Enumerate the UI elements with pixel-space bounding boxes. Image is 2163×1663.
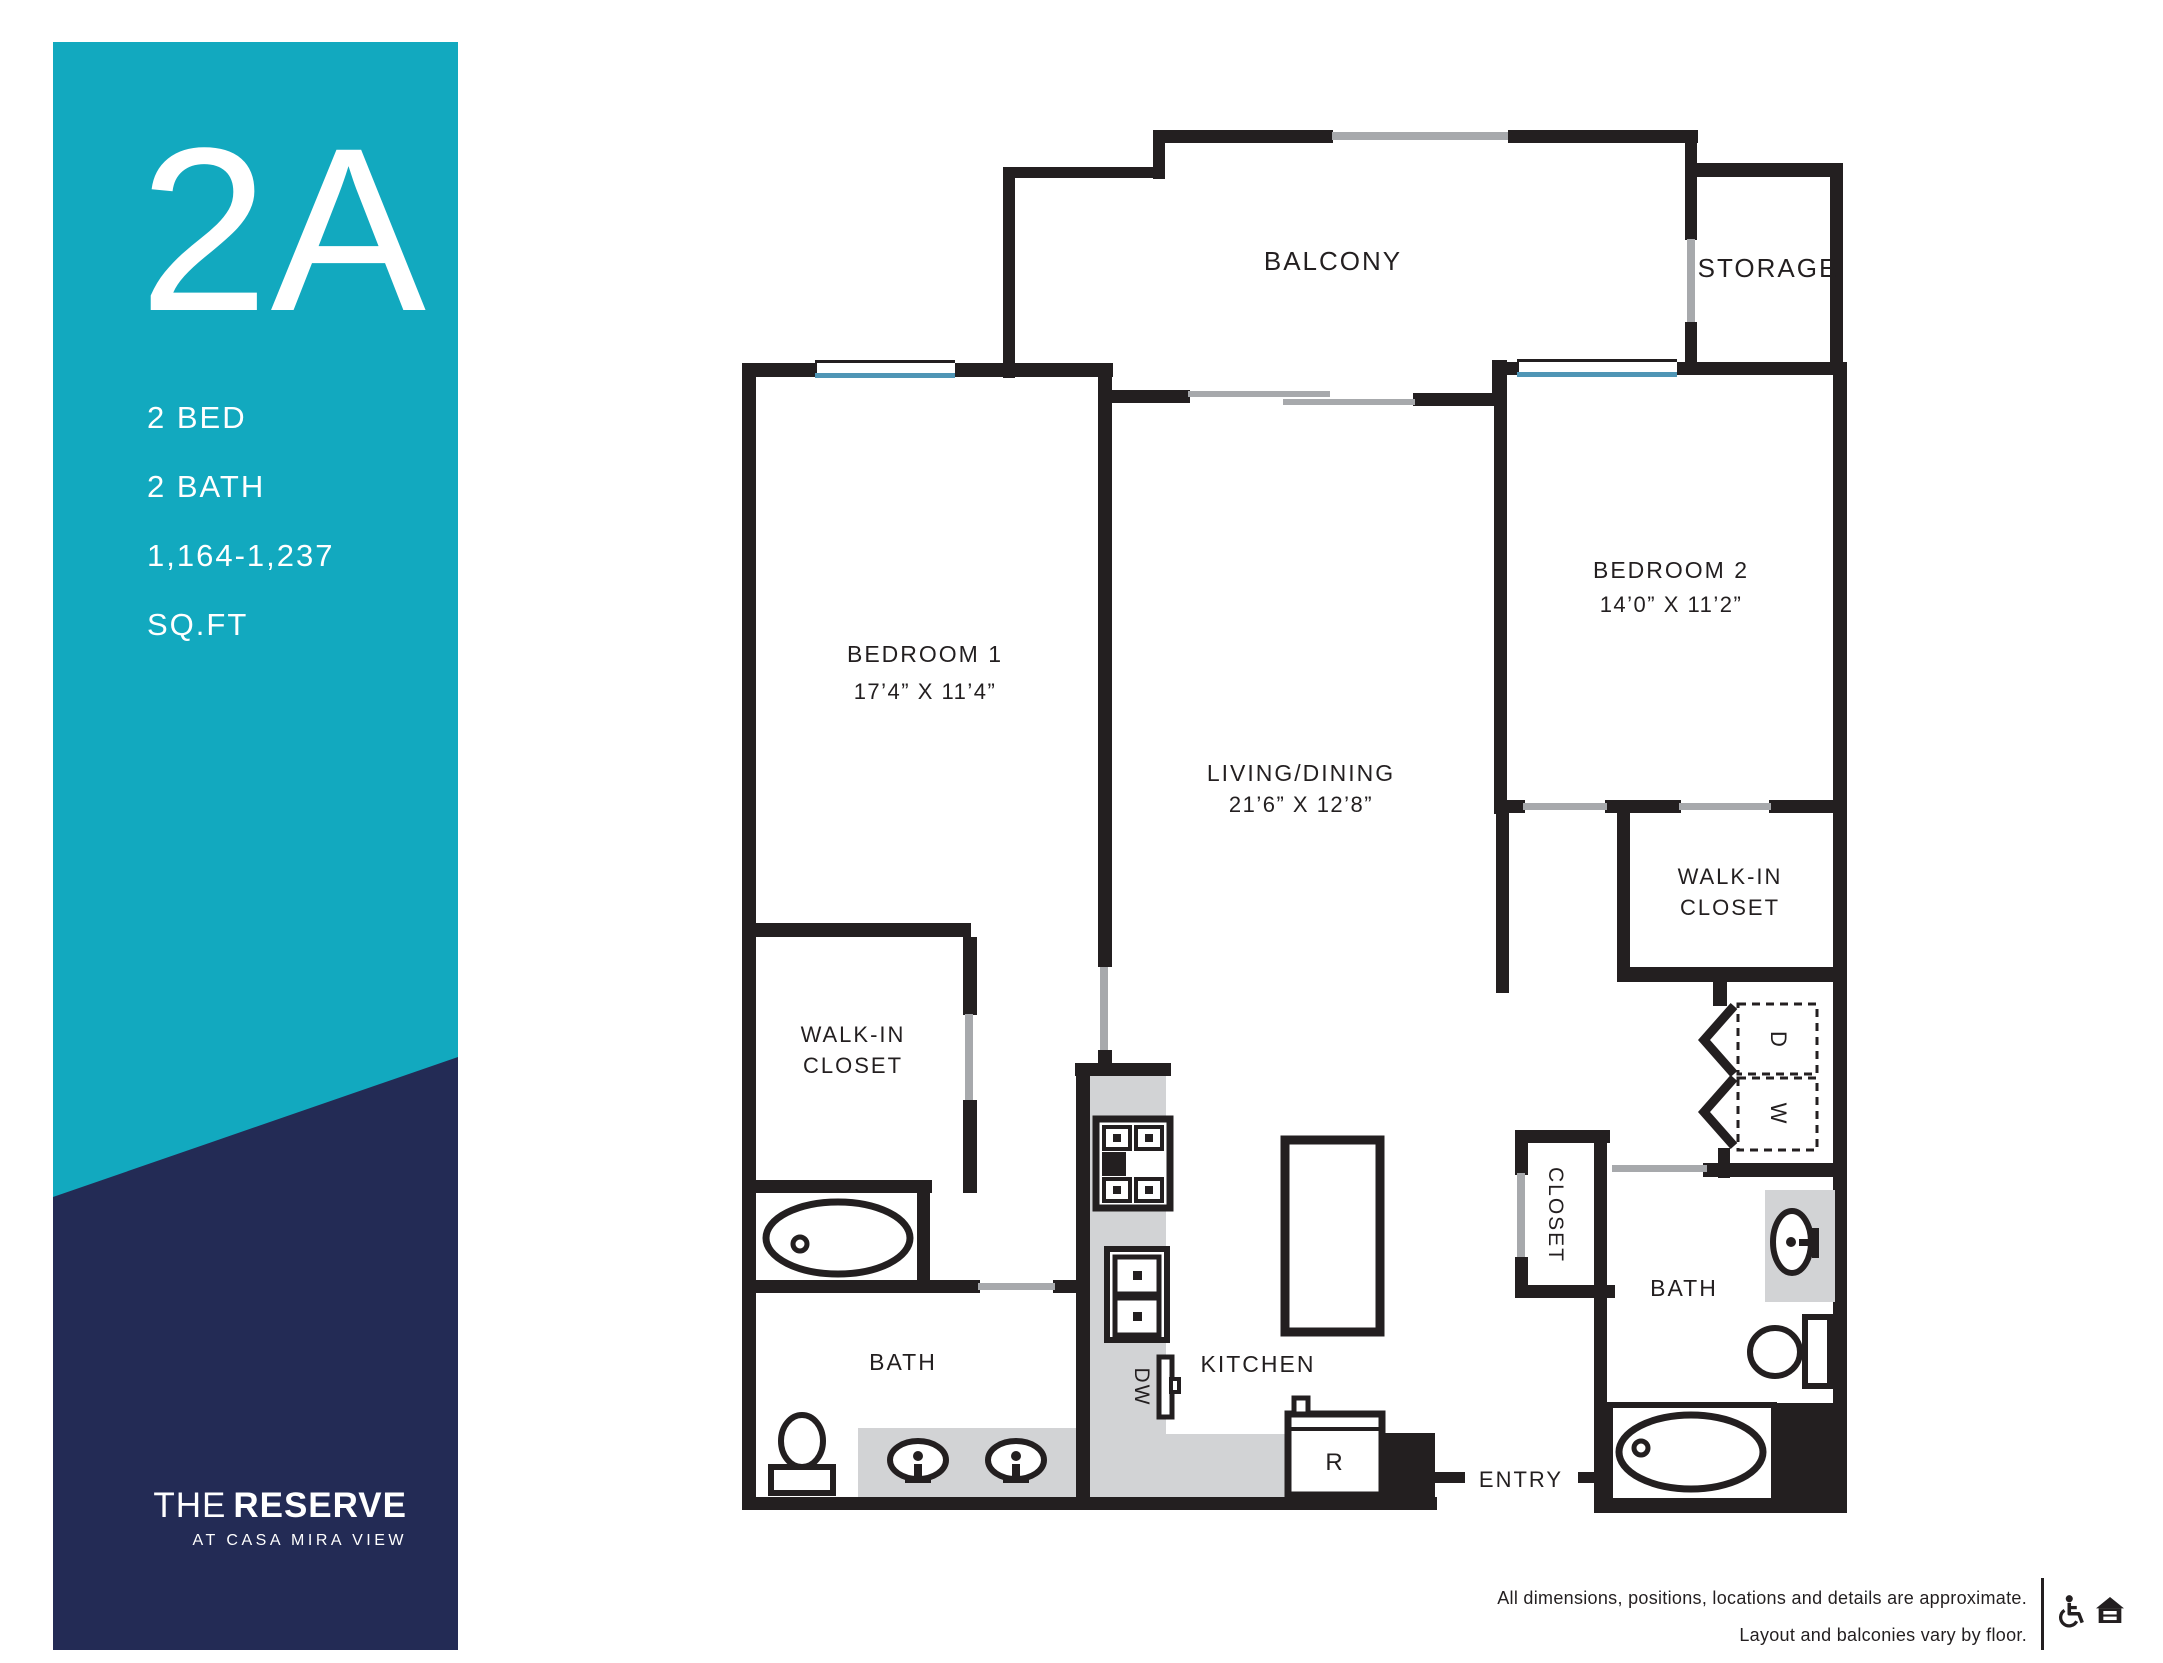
bathtub-icon bbox=[766, 1202, 910, 1274]
room-dims-bedroom2: 14’0” X 11’2” bbox=[1600, 592, 1743, 617]
bathtub-icon bbox=[1610, 1405, 1774, 1501]
bedroom1-door bbox=[1100, 967, 1108, 1050]
floor-plan: BALCONY STORAGE BEDROOM 1 17’4” X 11’4” … bbox=[0, 0, 2163, 1663]
label-refrigerator: R bbox=[1325, 1449, 1344, 1476]
room-label-entry: ENTRY bbox=[1479, 1467, 1563, 1492]
room-label-kitchen: KITCHEN bbox=[1201, 1351, 1316, 1377]
room-dims-bedroom1: 17’4” X 11’4” bbox=[854, 679, 997, 704]
closet-door bbox=[1517, 1173, 1525, 1257]
room-label-storage: STORAGE bbox=[1698, 253, 1839, 283]
footer-icons bbox=[2057, 1594, 2126, 1628]
bath2-door bbox=[1612, 1165, 1707, 1172]
label-dryer: D bbox=[1766, 1031, 1791, 1049]
bifold-doors-icon bbox=[1704, 1006, 1734, 1146]
room-label-wic2-line2: CLOSET bbox=[1680, 895, 1780, 920]
toilet-icon bbox=[771, 1415, 833, 1493]
bath1-door bbox=[978, 1283, 1055, 1290]
bedroom1-window bbox=[815, 373, 955, 378]
sink-icon bbox=[988, 1441, 1044, 1483]
bedroom2-window bbox=[1517, 372, 1677, 377]
sliding-door-panel bbox=[1283, 399, 1415, 405]
room-label-bath2: BATH bbox=[1650, 1275, 1718, 1301]
room-label-closet: CLOSET bbox=[1544, 1167, 1567, 1263]
room-label-bath1: BATH bbox=[869, 1349, 937, 1375]
dishwasher-icon bbox=[1159, 1357, 1179, 1417]
room-dims-living: 21’6” X 12’8” bbox=[1229, 792, 1373, 817]
room-label-bedroom2: BEDROOM 2 bbox=[1593, 557, 1749, 583]
windows bbox=[815, 359, 1677, 378]
equal-housing-icon bbox=[2094, 1595, 2126, 1627]
balcony-railing bbox=[1332, 132, 1508, 140]
wheelchair-accessible-icon bbox=[2057, 1594, 2087, 1628]
wic1-door bbox=[965, 1014, 973, 1100]
bedroom2-door bbox=[1523, 803, 1607, 810]
room-label-living: LIVING/DINING bbox=[1207, 760, 1395, 786]
kitchen-island bbox=[1285, 1140, 1380, 1332]
stove-icon bbox=[1096, 1119, 1170, 1208]
room-label-wic1-line1: WALK-IN bbox=[801, 1022, 906, 1047]
room-label-bedroom1: BEDROOM 1 bbox=[847, 641, 1003, 667]
room-label-wic1-line2: CLOSET bbox=[803, 1053, 903, 1078]
sliding-door-panel bbox=[1188, 391, 1330, 397]
disclaimer: All dimensions, positions, locations and… bbox=[1497, 1580, 2027, 1654]
footer-divider bbox=[2041, 1578, 2044, 1650]
toilet-icon bbox=[1750, 1317, 1830, 1386]
refrigerator-icon bbox=[1288, 1398, 1382, 1495]
room-label-wic2-line1: WALK-IN bbox=[1678, 864, 1783, 889]
room-label-balcony: BALCONY bbox=[1264, 246, 1402, 276]
storage-door bbox=[1687, 239, 1695, 322]
page: { "sidebar": { "teal": "#12a9bf", "navy"… bbox=[0, 0, 2163, 1663]
label-washer: W bbox=[1766, 1103, 1791, 1126]
wic2-door bbox=[1679, 803, 1771, 810]
disclaimer-line2: Layout and balconies vary by floor. bbox=[1497, 1617, 2027, 1654]
label-dishwasher: DW bbox=[1130, 1368, 1153, 1407]
sink-icon bbox=[890, 1441, 946, 1483]
kitchen-sink-icon bbox=[1107, 1249, 1167, 1340]
disclaimer-line1: All dimensions, positions, locations and… bbox=[1497, 1580, 2027, 1617]
